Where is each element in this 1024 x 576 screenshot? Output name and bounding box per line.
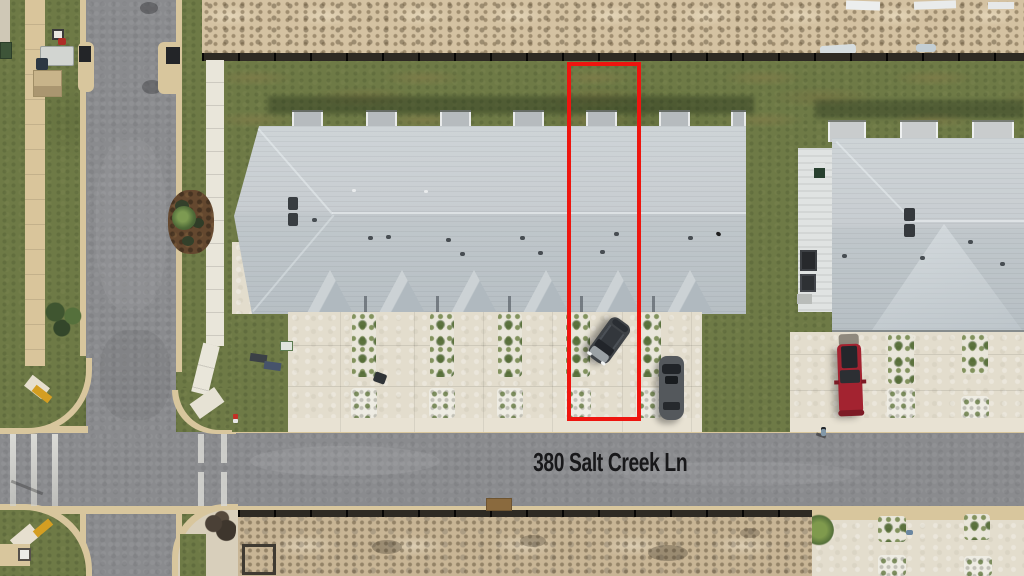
roof-vent <box>688 236 693 240</box>
crosswalk-stripe <box>31 434 37 506</box>
roof-vent <box>538 251 543 255</box>
roof-vent <box>368 236 373 240</box>
shrub <box>182 236 194 246</box>
attic-vent <box>288 197 298 210</box>
truck-mirror <box>861 379 866 383</box>
lumber-debris <box>988 2 1014 9</box>
shrub-cluster <box>42 298 86 338</box>
rock-bed <box>497 388 523 418</box>
silt-fence-bottom <box>238 510 812 517</box>
planting-strip <box>888 334 914 384</box>
roof-vent <box>520 236 525 240</box>
concrete-joint <box>483 312 484 432</box>
attic-vent <box>904 208 915 221</box>
truck-mirror <box>834 380 839 384</box>
ac-unit <box>800 274 816 292</box>
roof-vent <box>920 256 925 260</box>
footing-form <box>242 544 276 575</box>
unit-gap <box>652 296 655 313</box>
planting-strip <box>430 313 454 377</box>
rock-bed <box>351 388 377 418</box>
red-pickup-truck <box>833 333 868 418</box>
attic-vent <box>904 224 915 237</box>
truck-bed <box>841 346 858 369</box>
planting-strip <box>878 516 906 542</box>
crosswalk-stripe <box>221 434 227 506</box>
planting-strip <box>964 514 990 540</box>
aerial-photo: 380 Salt Creek Ln <box>0 0 1024 576</box>
truck-windshield <box>840 370 860 384</box>
equipment-pad <box>797 294 812 304</box>
pavement-patch <box>100 330 170 420</box>
yard-item <box>906 530 913 535</box>
pavement-patch <box>96 140 166 310</box>
storm-drain <box>166 47 180 64</box>
utility-box <box>0 42 12 59</box>
pavement-stain <box>140 2 158 14</box>
pipe-vent <box>352 189 356 192</box>
roof-vent <box>968 240 973 244</box>
concrete-joint <box>552 312 553 432</box>
suv-sunroof <box>665 376 678 384</box>
debris-pile <box>204 510 236 544</box>
pavement-edge <box>0 0 10 46</box>
crosswalk-stripe <box>10 434 16 506</box>
lot-highlight-outline <box>567 62 641 421</box>
construction-dirt-top <box>202 0 1024 58</box>
driveway-south <box>812 520 1024 576</box>
storage-shed <box>33 70 62 97</box>
end-wall-windows <box>814 163 825 178</box>
pedestrian <box>821 427 826 436</box>
sidewalk-south <box>812 506 1024 520</box>
suv-windshield <box>662 364 681 374</box>
roof-vent <box>1000 262 1005 266</box>
pipe-vent <box>424 190 428 193</box>
storm-drain <box>79 46 91 62</box>
truck-bumper <box>838 410 864 417</box>
concrete-joint <box>691 312 692 432</box>
rear-tree-shadow <box>815 100 1024 118</box>
concrete-joint <box>414 312 415 432</box>
survey-marker <box>18 548 31 561</box>
rock-bed <box>964 556 992 576</box>
attic-vent <box>288 213 298 226</box>
left-building-roof <box>234 126 746 314</box>
roof-vent <box>386 235 391 239</box>
rock-bed <box>429 388 455 418</box>
front-lawn <box>232 314 288 432</box>
yard-sign <box>280 341 293 351</box>
roof-vent <box>842 254 847 258</box>
lumber-debris <box>914 0 956 9</box>
rock-bed <box>878 555 906 576</box>
unit-gap <box>508 296 511 313</box>
ac-unit <box>800 250 817 271</box>
red-equipment <box>58 38 66 45</box>
suv-rear-window <box>663 402 680 410</box>
dirt-debris <box>648 545 688 561</box>
rock-bed <box>887 388 915 418</box>
rock-bed <box>961 396 989 418</box>
young-tree <box>172 206 196 230</box>
crosswalk-stripe <box>198 434 204 506</box>
roof-ridge <box>910 220 1024 222</box>
planting-strip <box>498 313 522 377</box>
concrete-joint <box>340 312 341 432</box>
street-name-text: 380 Salt Creek Ln <box>533 447 687 478</box>
unit-gap <box>364 296 367 313</box>
roof-vent <box>460 252 465 256</box>
dirt-debris <box>520 535 546 547</box>
gray-suv <box>659 356 684 420</box>
gap-lawn <box>702 314 790 432</box>
crosswalk-stripe <box>52 434 58 506</box>
dirt-debris <box>740 528 760 538</box>
roof-ridge <box>332 212 746 214</box>
silt-fence-top <box>202 53 1024 61</box>
plywood-board <box>486 498 512 511</box>
pavement-patch <box>250 446 440 476</box>
dirt-debris <box>372 540 402 554</box>
lumber-debris <box>846 0 880 10</box>
small-marker-white <box>233 419 238 423</box>
street-name-label: 380 Salt Creek Ln <box>510 447 710 477</box>
storage-tub <box>36 58 48 70</box>
planting-strip <box>962 334 988 374</box>
planting-strip <box>352 313 376 377</box>
unit-gap <box>436 296 439 313</box>
tarp-debris <box>916 44 936 52</box>
roof-vent <box>312 218 317 222</box>
roof-vent <box>446 238 451 242</box>
corner-grass-se <box>180 534 206 576</box>
